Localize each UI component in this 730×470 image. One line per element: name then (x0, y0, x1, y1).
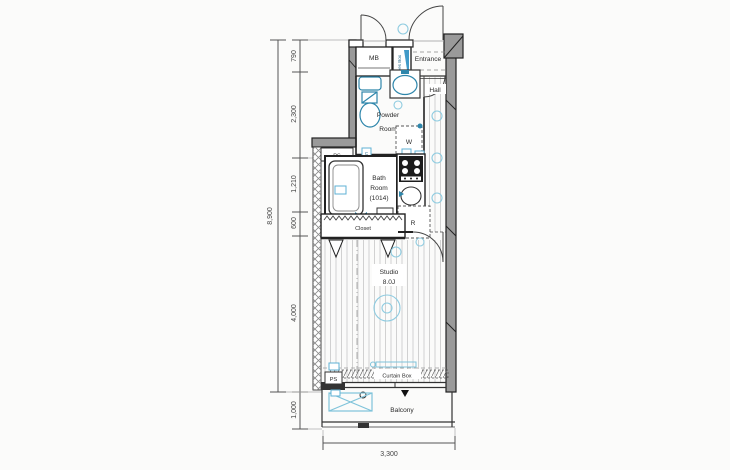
closet-label: Closet (355, 226, 371, 232)
powder-room-label-2: Room (379, 126, 397, 133)
dim-seg-790: 790 (291, 50, 298, 62)
studio-label-2: 8.0J (383, 279, 395, 286)
left-step-wall (312, 138, 356, 147)
kitchen-sink (401, 187, 421, 205)
bath-tag (335, 186, 346, 194)
bathtub (329, 161, 367, 220)
studio-tag (329, 363, 339, 370)
dim-seg-4000: 4,000 (291, 304, 298, 322)
floor-plan-drawing: 8,900 790 2,300 1,210 600 4,000 1,000 3,… (0, 0, 730, 470)
curtain-box-label: Curtain Box (382, 374, 411, 380)
dim-seg-600: 600 (291, 217, 298, 229)
dim-seg-1210: 1,210 (291, 175, 298, 193)
dim-seg-2300: 2,300 (291, 105, 298, 123)
fridge-label: R (411, 220, 416, 227)
kitchen (397, 154, 425, 212)
upper-left-wall (349, 40, 356, 146)
mb-label: MB (369, 55, 379, 62)
top-wall-mid (386, 40, 413, 47)
floor-plan: 8,900 790 2,300 1,210 600 4,000 1,000 3,… (0, 0, 730, 470)
hall-label: Hall (429, 87, 441, 94)
right-concrete-wall (446, 40, 456, 392)
entrance-label: Entrance (415, 56, 442, 63)
dim-left-total: 8,900 (267, 207, 274, 225)
washer-label: W (406, 139, 413, 146)
studio-flooring (322, 240, 446, 382)
balcony-drain (358, 423, 369, 428)
basin-faucet (401, 70, 409, 74)
left-insulation-hatch (313, 147, 321, 390)
dim-bottom-width: 3,300 (380, 451, 398, 458)
ps-bottom-label: PS (330, 377, 338, 383)
studio-label-1: Studio (380, 269, 399, 276)
wash-basin (390, 70, 420, 98)
bath-label-1: Bath (372, 175, 386, 182)
balcony-label: Balcony (390, 407, 414, 414)
bath-label-2: Room (370, 185, 388, 192)
bath-label-3: (1014) (369, 195, 388, 202)
dim-seg-1000: 1,000 (291, 401, 298, 419)
powder-room-label-1: Powder (377, 112, 400, 119)
balcony-tag (331, 390, 340, 396)
